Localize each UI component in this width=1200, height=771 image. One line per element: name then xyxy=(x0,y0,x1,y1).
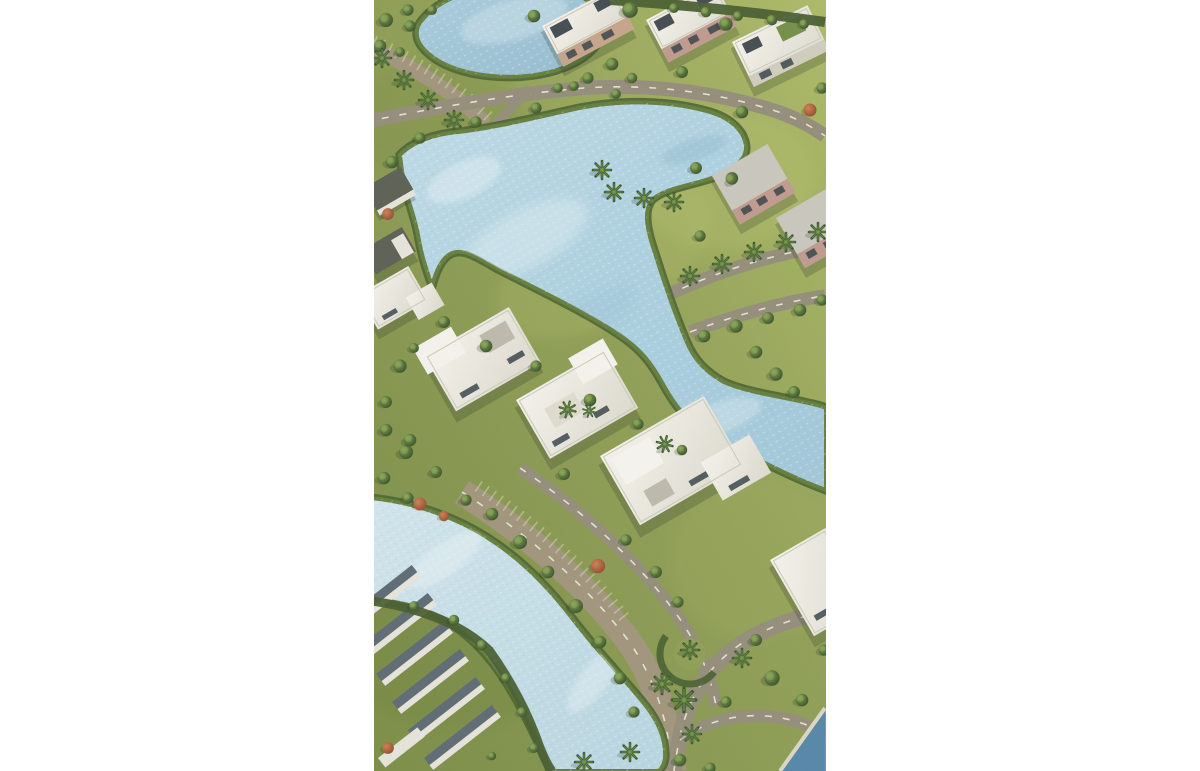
compound-masterplan-svg xyxy=(374,0,826,771)
white-margin-right xyxy=(826,0,1200,771)
lighting-overlay xyxy=(374,0,826,771)
page-background xyxy=(0,0,1200,771)
aerial-render-image xyxy=(374,0,826,771)
white-margin-left xyxy=(0,0,374,771)
